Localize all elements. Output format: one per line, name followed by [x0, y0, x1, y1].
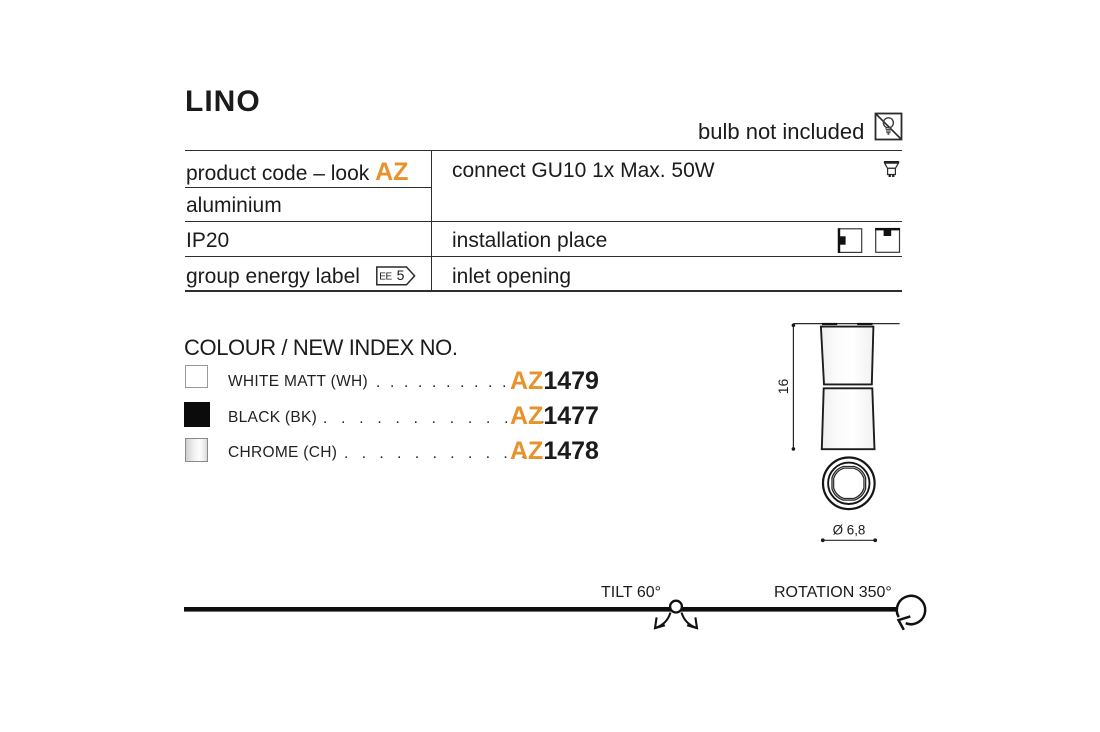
svg-text:5: 5	[397, 267, 405, 283]
svg-text:16: 16	[775, 379, 791, 395]
svg-text:EE: EE	[379, 272, 392, 283]
svg-text:Ø 6,8: Ø 6,8	[833, 523, 866, 538]
